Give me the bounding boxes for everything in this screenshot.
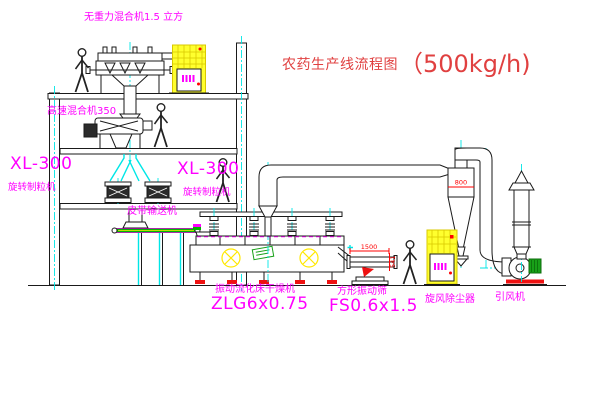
- control-cabinet-lower: [424, 230, 460, 285]
- screen-base: [356, 277, 384, 281]
- cyclone-dimension: 800: [455, 179, 467, 187]
- fan-motor: [529, 259, 541, 273]
- person-figure-second-floor: [155, 104, 168, 147]
- induced-draft-fan: [502, 257, 547, 285]
- granulator-left: [105, 178, 131, 206]
- stack-body: [514, 190, 529, 247]
- dryer-body: [190, 245, 344, 272]
- label-gravity-mixer: 无重力混合机1.5 立方: [84, 13, 183, 23]
- indicator-dot: [449, 272, 452, 275]
- mixer350-motor: [84, 124, 97, 137]
- label-belt-conveyor: 皮带输送机: [127, 207, 177, 217]
- title-text: 农药生产线流程图: [282, 54, 398, 74]
- floor-slab-1: [48, 94, 248, 100]
- control-cabinet-upper: [169, 45, 209, 93]
- label-granulator-left-name: 旋转制粒机: [8, 183, 56, 193]
- label-granulator-mid-model: XL-300: [177, 161, 239, 178]
- fan-base: [506, 280, 544, 284]
- stack-cap: [509, 183, 534, 190]
- screen-height-dimension: 541: [389, 256, 397, 268]
- floor-slab-2: [60, 149, 237, 155]
- belt-conveyor: [112, 224, 201, 285]
- screen-arrow: [362, 267, 374, 277]
- label-dryer-model: ZLG6x0.75: [211, 296, 309, 313]
- label-fan: 引风机: [495, 293, 525, 303]
- diagram-title: 农药生产线流程图 （500kg/h): [282, 44, 531, 79]
- mixer350-discharge: [110, 134, 132, 148]
- conveyor-legs: [139, 233, 184, 285]
- granulator-right: [145, 178, 171, 206]
- person-figure-ground: [404, 241, 417, 284]
- mixer-top-body: [98, 53, 162, 61]
- flow-diagram-canvas: 800: [0, 0, 600, 403]
- indicator-dot: [197, 83, 200, 86]
- label-granulator-mid-name: 旋转制粒机: [183, 188, 231, 198]
- mixer350-inlet: [120, 114, 140, 118]
- label-screen-model: FS0.6x1.5: [329, 298, 418, 315]
- vibrating-screen: 1500 541: [338, 243, 397, 285]
- label-high-speed-mixer: 高速混合机350: [47, 107, 116, 117]
- label-cyclone: 旋风除尘器: [425, 295, 475, 305]
- mixer-discharge-duct: [124, 86, 136, 114]
- high-speed-mixer: [84, 114, 152, 148]
- label-granulator-left-model: XL-300: [10, 156, 72, 173]
- dryer-legs: [195, 272, 337, 284]
- title-capacity: （500kg/h): [399, 44, 531, 79]
- screen-length-dimension: 1500: [361, 243, 378, 251]
